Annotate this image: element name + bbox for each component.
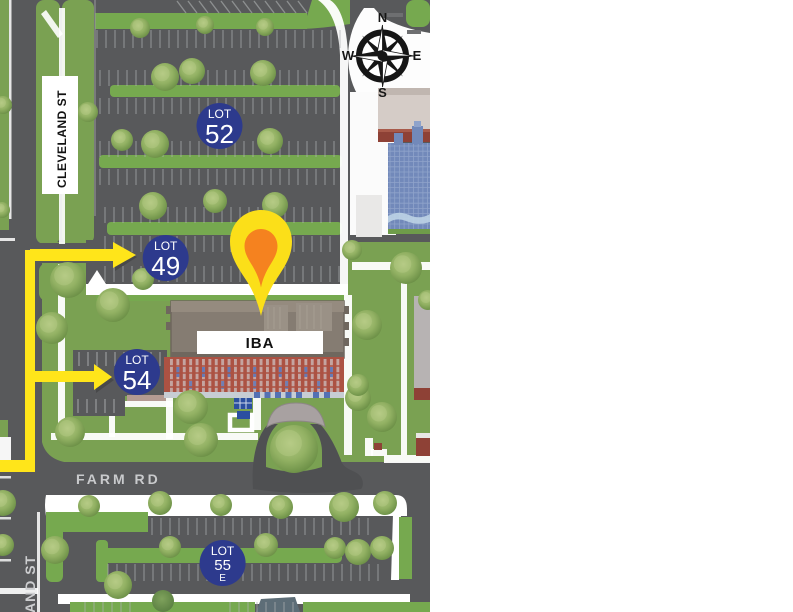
- svg-text:LOT: LOT: [211, 544, 235, 558]
- svg-text:W: W: [342, 48, 355, 63]
- svg-text:N: N: [378, 10, 387, 25]
- svg-text:AND ST: AND ST: [22, 555, 38, 612]
- svg-text:54: 54: [123, 365, 152, 395]
- svg-text:E: E: [219, 573, 226, 584]
- svg-text:49: 49: [151, 251, 180, 281]
- svg-text:52: 52: [205, 119, 234, 149]
- svg-text:55: 55: [214, 557, 231, 574]
- svg-text:CLEVELAND ST: CLEVELAND ST: [55, 90, 69, 188]
- svg-text:IBA: IBA: [246, 335, 275, 352]
- svg-text:FARM RD: FARM RD: [76, 471, 161, 487]
- svg-text:S: S: [378, 85, 387, 100]
- svg-text:E: E: [413, 48, 422, 63]
